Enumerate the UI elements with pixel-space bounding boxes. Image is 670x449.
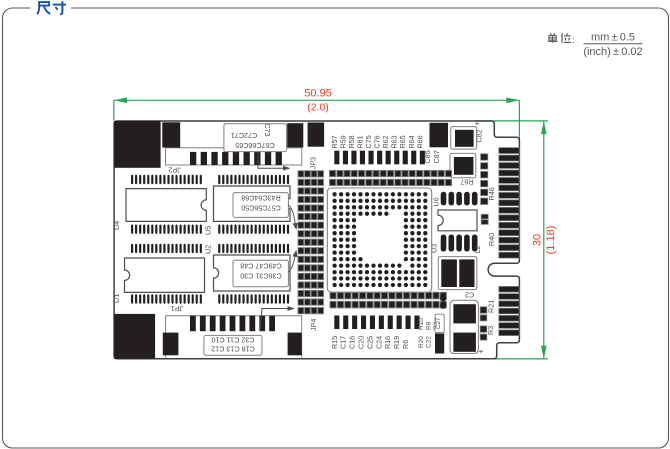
svg-text:mm ± 0.5: mm ± 0.5 [591, 32, 635, 44]
svg-text:(inch) ± 0.02: (inch) ± 0.02 [583, 46, 642, 58]
svg-text:C85: C85 [423, 150, 432, 163]
svg-text:U3: U3 [430, 244, 439, 253]
svg-text:U2: U2 [204, 245, 213, 254]
svg-text:R10: R10 [418, 318, 425, 330]
svg-text:L2: L2 [473, 246, 482, 254]
svg-text:R6: R6 [401, 340, 410, 349]
svg-text:C2: C2 [465, 290, 474, 299]
svg-text:R66: R66 [415, 135, 424, 148]
svg-text:C18 C13 C12: C18 C13 C12 [211, 345, 255, 354]
svg-text:R43C64C68: R43C64C68 [241, 194, 281, 203]
svg-text:R19: R19 [392, 336, 401, 349]
svg-text:C87: C87 [432, 150, 441, 163]
svg-text:R8: R8 [426, 321, 433, 330]
svg-text:R21: R21 [487, 300, 496, 313]
svg-text:R20: R20 [418, 336, 425, 348]
svg-text:C36C31 C30: C36C31 C30 [240, 272, 282, 281]
svg-text:JP2: JP2 [168, 166, 180, 175]
svg-text:C27: C27 [435, 317, 442, 329]
svg-text:U5: U5 [204, 226, 213, 235]
svg-text:+: + [475, 118, 480, 128]
svg-text:R46: R46 [487, 187, 496, 200]
svg-text:JP4: JP4 [309, 319, 318, 331]
svg-text:R15: R15 [330, 336, 339, 349]
svg-text:30: 30 [532, 234, 544, 246]
svg-text:R16: R16 [383, 336, 392, 349]
svg-text:U1: U1 [112, 294, 121, 303]
svg-text:C20: C20 [357, 336, 366, 349]
svg-text:C22: C22 [426, 336, 433, 348]
svg-text:JP3: JP3 [309, 157, 318, 169]
svg-text:R67: R67 [460, 178, 473, 187]
svg-text:C57C56C50: C57C56C50 [241, 204, 281, 213]
svg-text:U4: U4 [112, 221, 121, 230]
svg-text:JP1: JP1 [171, 304, 183, 313]
svg-text:R40: R40 [487, 233, 496, 246]
svg-text:C32 C11 C10: C32 C11 C10 [211, 336, 254, 345]
svg-text:C16: C16 [348, 336, 357, 349]
svg-text:(1.18): (1.18) [545, 226, 557, 255]
svg-text:C25: C25 [365, 336, 374, 349]
svg-text:C73: C73 [263, 123, 272, 136]
svg-text:C82: C82 [477, 130, 484, 143]
svg-text:C17: C17 [339, 336, 348, 349]
svg-text:C72C71: C72C71 [231, 131, 257, 140]
svg-text:50.95: 50.95 [304, 88, 332, 100]
svg-text:C24: C24 [374, 336, 383, 349]
svg-text:+: + [479, 346, 484, 356]
svg-text::: : [572, 34, 575, 46]
svg-text:U6: U6 [432, 197, 441, 206]
svg-text:R3: R3 [486, 326, 495, 335]
svg-text:C49C47 C48: C49C47 C48 [240, 262, 282, 271]
svg-text:C67C66C65: C67C66C65 [235, 141, 275, 150]
svg-text:(2.0): (2.0) [307, 101, 329, 113]
